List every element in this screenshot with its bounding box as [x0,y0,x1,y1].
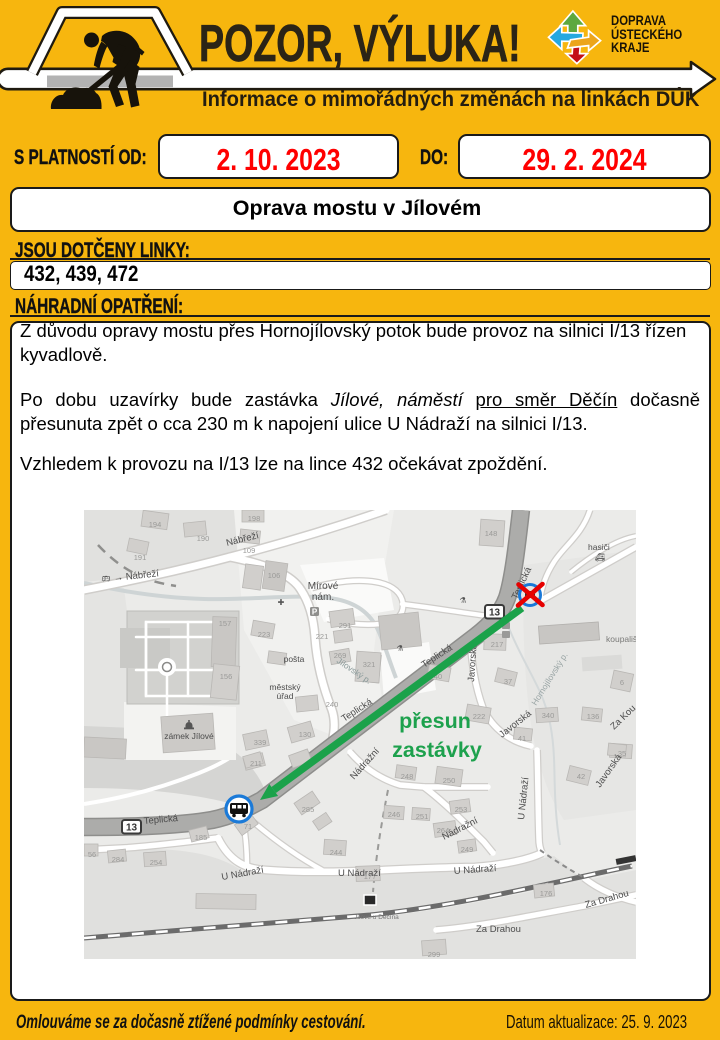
svg-text:194: 194 [149,520,162,529]
svg-text:úřad: úřad [276,691,293,701]
svg-text:284: 284 [112,855,125,864]
svg-text:253: 253 [455,805,468,814]
svg-text:176: 176 [540,889,553,898]
svg-text:zastávky: zastávky [392,738,482,762]
svg-text:13: 13 [489,607,501,618]
svg-text:41: 41 [518,734,526,743]
svg-text:koupaliště: koupaliště [606,634,636,644]
svg-text:156: 156 [220,672,233,681]
svg-text:zámek Jílové: zámek Jílové [164,731,214,741]
svg-text:223: 223 [258,630,271,639]
svg-text:222: 222 [473,712,486,721]
svg-text:6: 6 [620,678,624,687]
svg-text:191: 191 [134,553,147,562]
svg-text:246: 246 [388,810,401,819]
svg-text:249: 249 [461,845,474,854]
svg-text:Za Drahou: Za Drahou [476,924,521,935]
svg-text:nám.: nám. [312,592,334,603]
svg-text:přesun: přesun [399,709,471,733]
svg-text:Jílové u Děčína: Jílové u Děčína [354,914,399,921]
svg-text:109: 109 [243,546,256,555]
svg-text:13: 13 [126,822,138,833]
svg-text:198: 198 [248,514,261,523]
svg-text:248: 248 [401,772,414,781]
svg-text:254: 254 [150,858,163,867]
svg-text:106: 106 [268,571,281,580]
svg-text:⚗: ⚗ [396,644,403,653]
svg-text:37: 37 [504,677,512,686]
svg-text:211: 211 [250,759,262,768]
svg-text:217: 217 [491,640,504,649]
svg-text:250: 250 [443,776,456,785]
svg-text:240: 240 [326,700,339,709]
svg-text:321: 321 [363,660,376,669]
svg-text:42: 42 [577,772,585,781]
svg-text:✚: ✚ [278,598,285,607]
svg-text:35: 35 [618,749,626,758]
svg-text:340: 340 [542,711,555,720]
svg-text:130: 130 [299,730,312,739]
svg-text:🚑︎: 🚑︎ [595,552,605,562]
svg-text:264: 264 [437,826,450,835]
svg-text:269: 269 [334,651,347,660]
svg-text:hasiči: hasiči [588,542,610,552]
svg-text:177: 177 [364,872,377,881]
svg-text:221: 221 [316,632,329,641]
svg-text:251: 251 [416,812,429,821]
svg-text:299: 299 [428,950,441,959]
svg-text:⚗: ⚗ [459,596,466,605]
svg-text:285: 285 [302,805,315,814]
svg-text:185: 185 [195,833,208,842]
svg-text:71: 71 [244,822,252,831]
svg-text:244: 244 [330,848,343,857]
svg-text:339: 339 [254,738,267,747]
svg-text:157: 157 [219,619,232,628]
svg-text:pošta: pošta [284,654,305,664]
svg-text:291: 291 [339,621,352,630]
svg-text:190: 190 [197,534,210,543]
svg-text:136: 136 [587,712,600,721]
svg-text:Mírové: Mírové [308,581,339,592]
svg-text:148: 148 [485,529,498,538]
svg-text:56: 56 [88,850,96,859]
svg-text:🚌︎: 🚌︎ [102,575,111,583]
svg-text:P: P [312,608,318,617]
